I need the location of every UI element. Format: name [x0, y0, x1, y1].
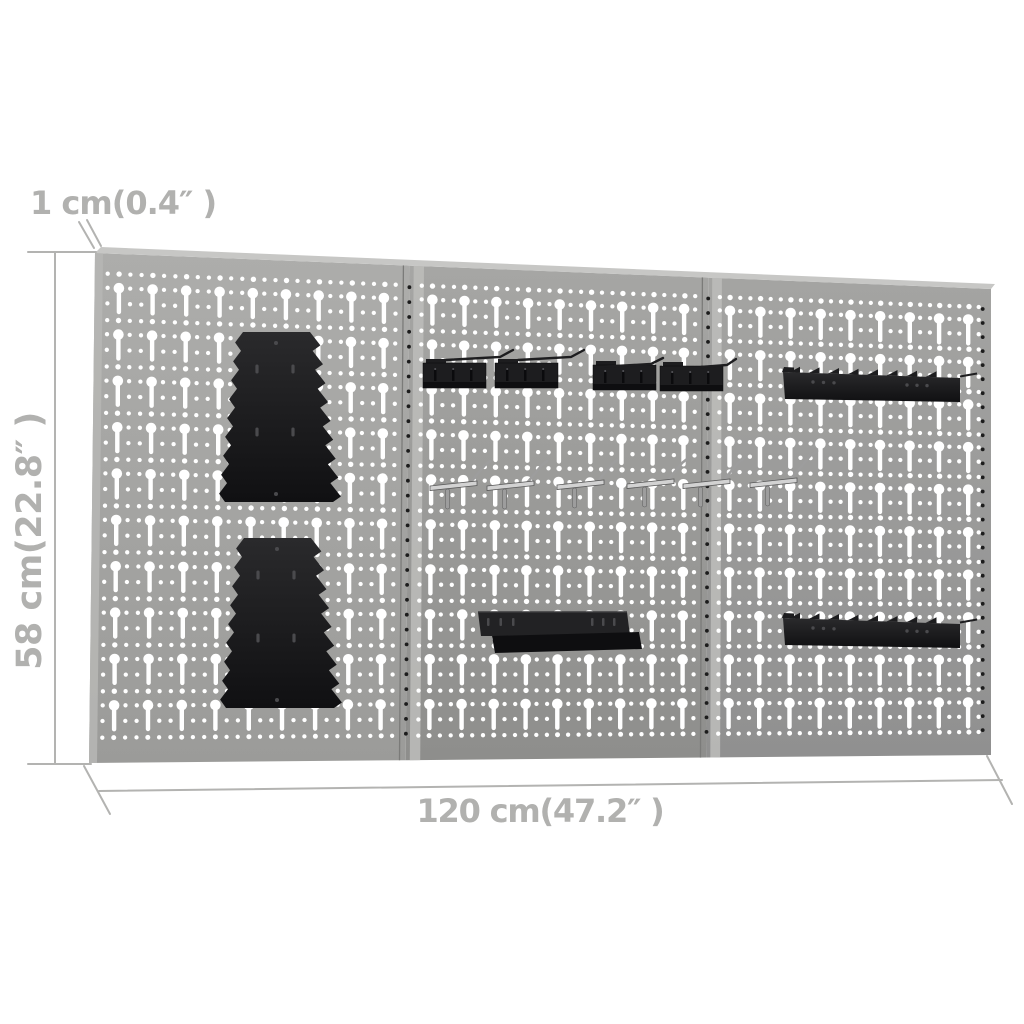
dimension-label-height: 58 cm(22.8″ ): [11, 401, 49, 681]
panel-divider-strip: [710, 278, 722, 758]
spring-clip-bracket-2: [495, 359, 558, 388]
storage-shelf: [478, 612, 642, 653]
pegboard-diagram: [0, 0, 1024, 1024]
dimension-label-width: 120 cm(47.2″ ): [340, 792, 740, 830]
pegboard-board: [89, 247, 995, 763]
product-dimension-diagram: 1 cm(0.4″ ) 58 cm(22.8″ ) 120 cm(47.2″ ): [0, 0, 1024, 1024]
dim-thickness-tick-2: [87, 220, 101, 246]
dim-width-line: [99, 780, 1002, 791]
dim-thickness-tick-1: [79, 222, 94, 248]
spring-clip-bracket-1: [423, 359, 486, 388]
dimension-label-thickness: 1 cm(0.4″ ): [30, 184, 216, 222]
